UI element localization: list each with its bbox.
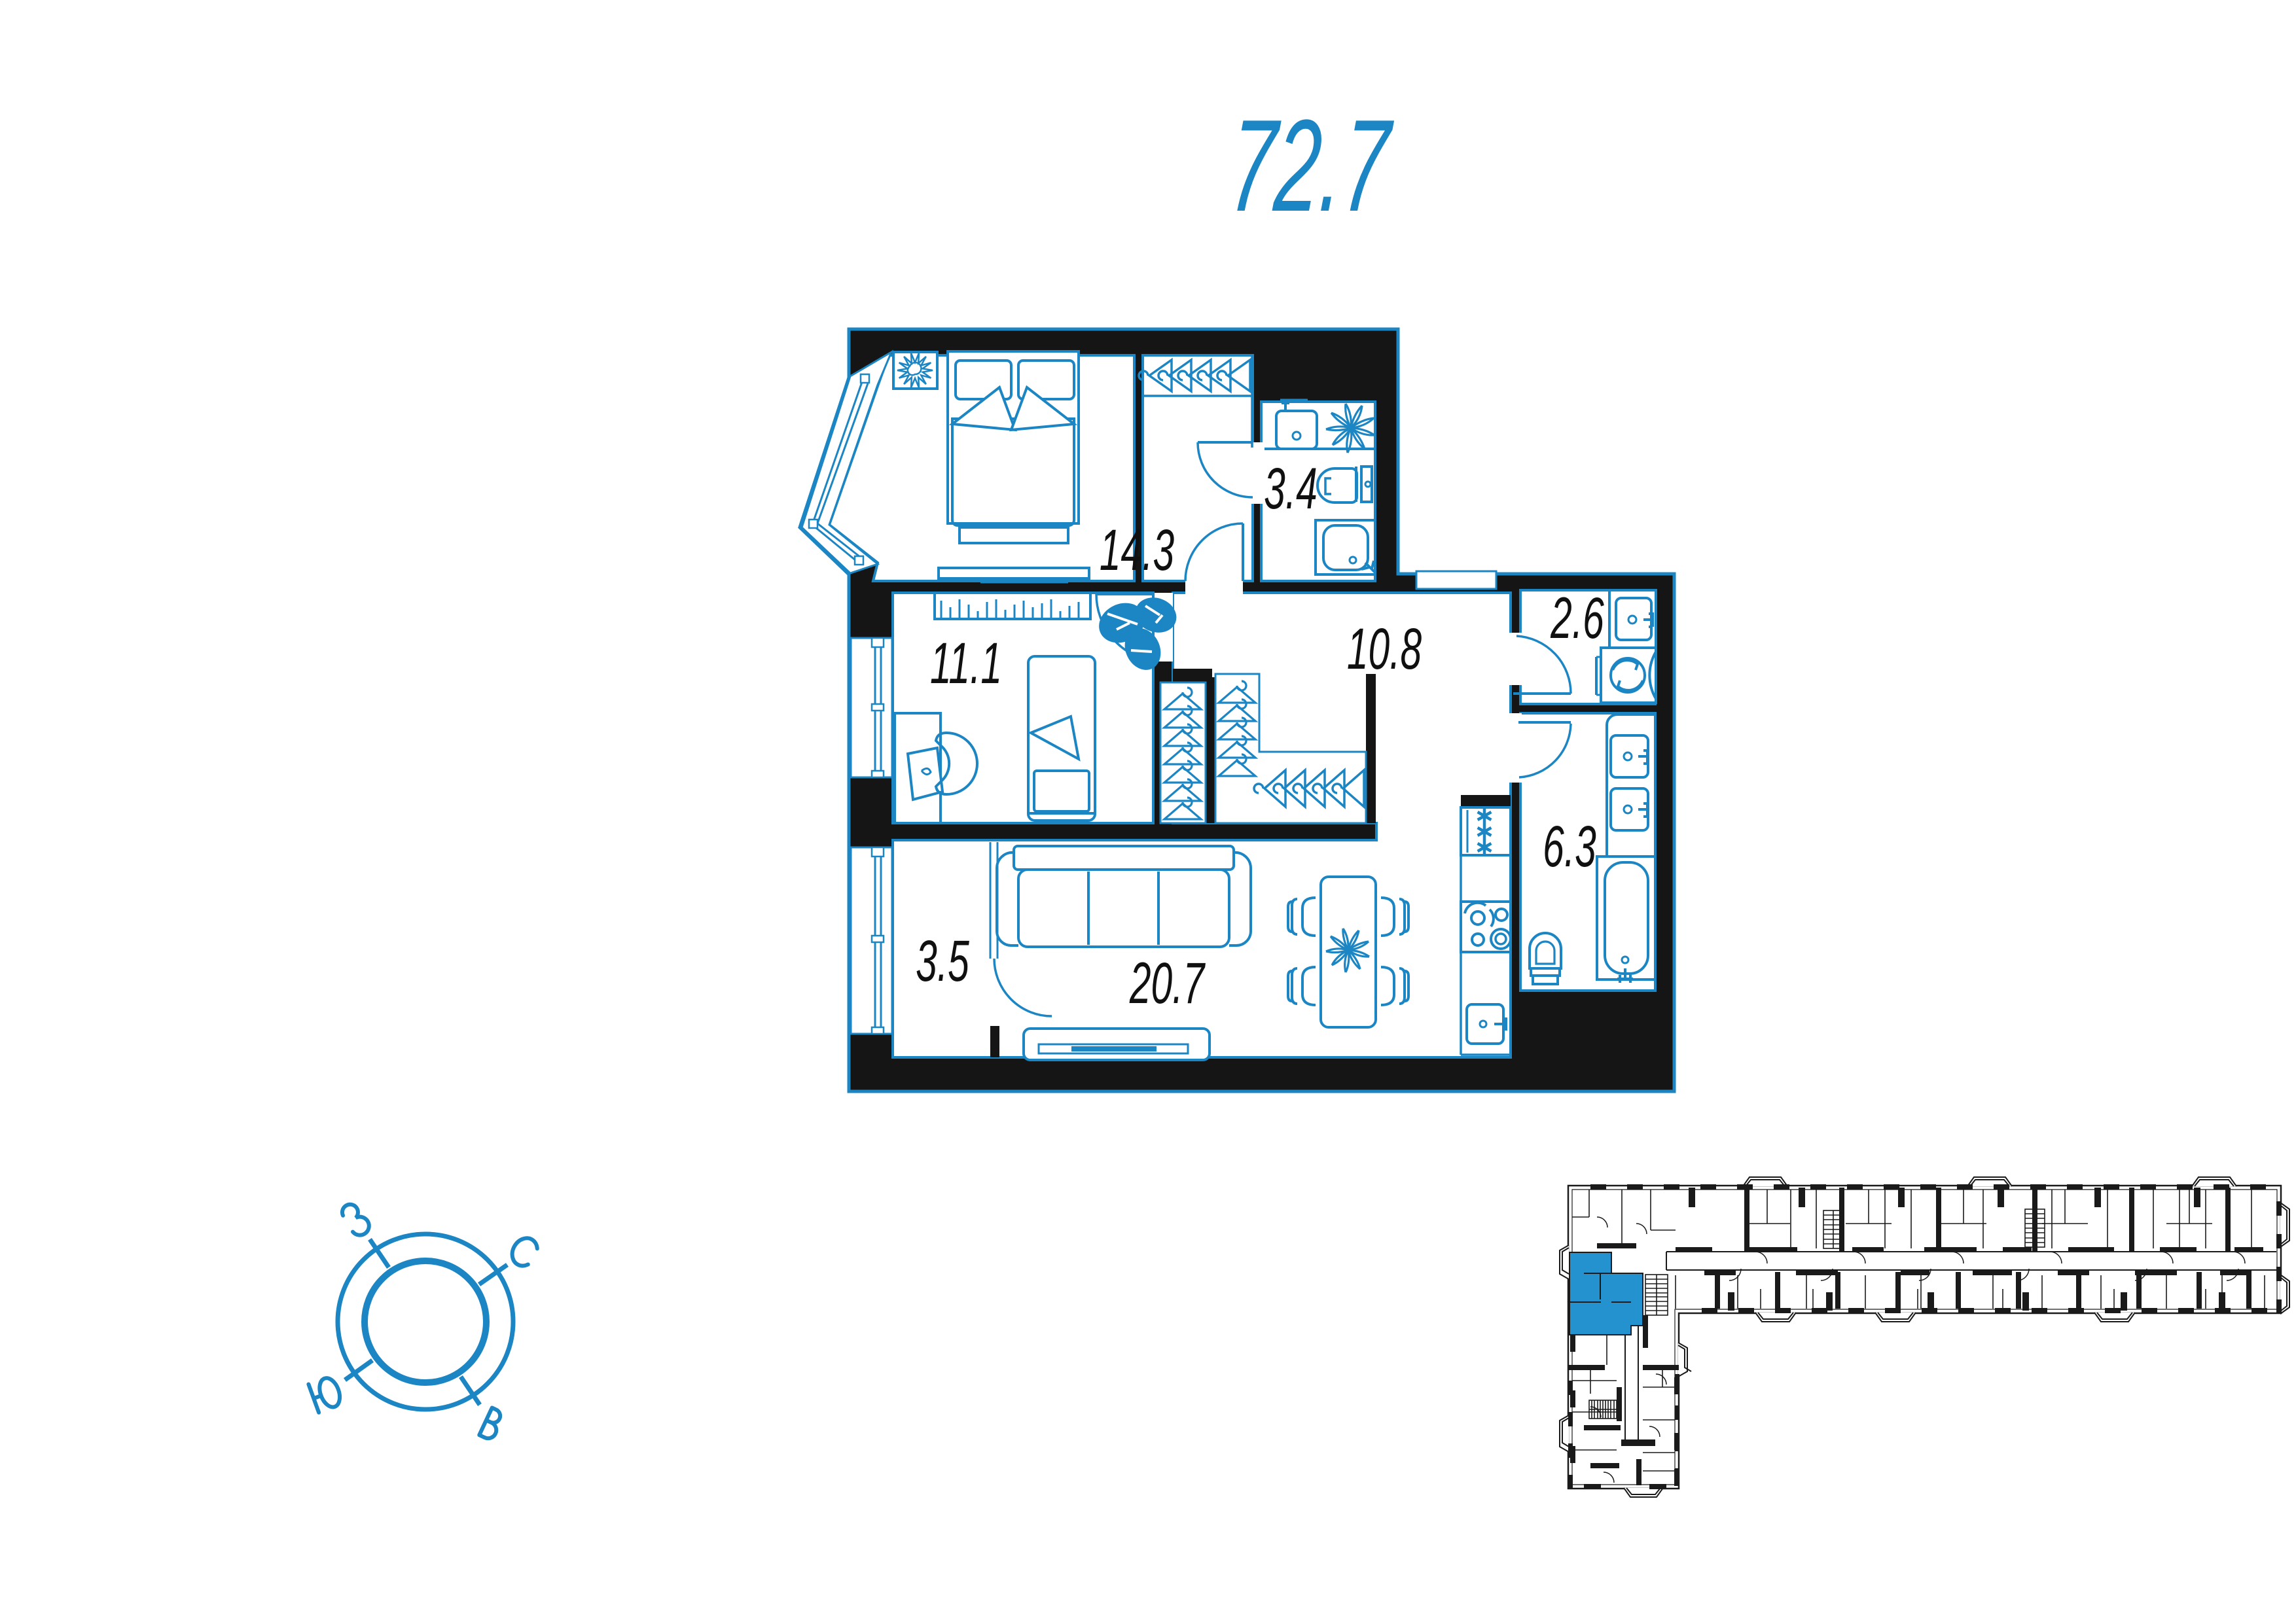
svg-text:3.5: 3.5 xyxy=(916,928,969,993)
svg-text:72.7: 72.7 xyxy=(1225,93,1396,239)
svg-text:11.1: 11.1 xyxy=(930,631,1002,696)
svg-text:20.7: 20.7 xyxy=(1129,951,1206,1015)
svg-text:10.8: 10.8 xyxy=(1347,616,1422,681)
svg-text:2.6: 2.6 xyxy=(1550,586,1604,650)
svg-text:3.4: 3.4 xyxy=(1264,456,1318,521)
svg-text:14.3: 14.3 xyxy=(1100,518,1174,582)
svg-text:6.3: 6.3 xyxy=(1543,814,1596,879)
